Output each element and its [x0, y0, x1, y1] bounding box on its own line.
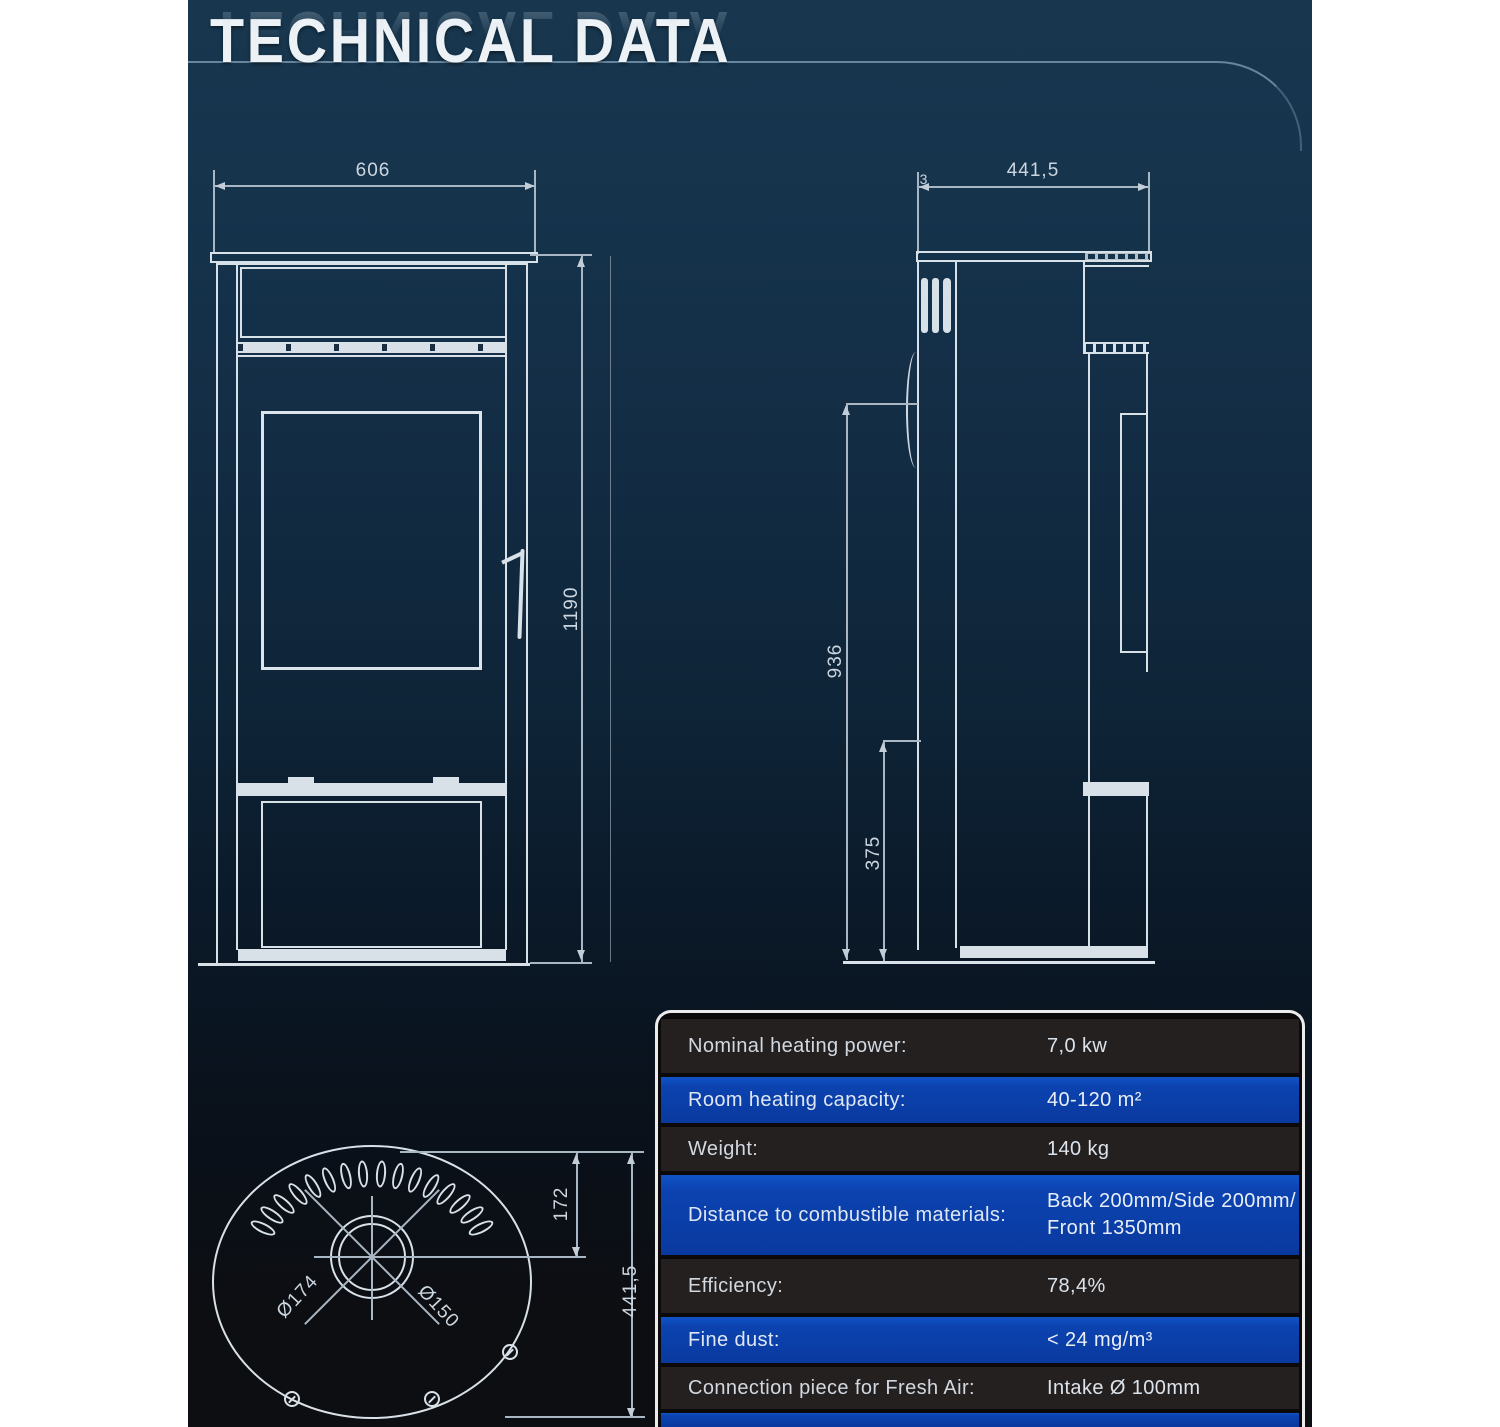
- spec-value: Back 200mm/Side 200mm/ Front 1350mm: [1047, 1188, 1296, 1242]
- flue-offset-dimension: 172: [551, 1174, 573, 1234]
- side-base-height-dimension: 375: [863, 823, 885, 883]
- spec-label: Weight:: [661, 1138, 1041, 1161]
- spec-value: 78,4%: [1047, 1273, 1106, 1300]
- page-title-reflection: TECHNICAL DATA: [210, 0, 731, 68]
- spec-value: Intake Ø 100mm: [1047, 1375, 1200, 1402]
- front-height-dimension: 1190: [561, 579, 583, 639]
- spec-label: Distance to combustible materials:: [661, 1204, 1041, 1227]
- side-depth-dimension: 441,5: [1000, 160, 1066, 182]
- front-door-glass: [261, 411, 482, 670]
- table-row: Efficiency: 78,4%: [661, 1259, 1299, 1313]
- table-row: Distance to combustible materials: Back …: [661, 1175, 1299, 1255]
- table-row: Nominal heating power: 7,0 kw: [661, 1019, 1299, 1073]
- spec-value-line2: Front 1350mm: [1047, 1215, 1296, 1242]
- table-row-partial: [661, 1413, 1299, 1427]
- table-row: Fine dust: < 24 mg/m³: [661, 1317, 1299, 1363]
- spec-value: 140 kg: [1047, 1136, 1109, 1163]
- spec-value: 40-120 m²: [1047, 1087, 1142, 1114]
- spec-label: Efficiency:: [661, 1275, 1041, 1298]
- plate-offset-dimension: 3: [916, 171, 932, 187]
- technical-data-sheet: TECHNICAL DATA TECHNICAL DATA 606: [0, 0, 1500, 1427]
- spec-label: Fine dust:: [661, 1329, 1041, 1352]
- spec-label: Nominal heating power:: [661, 1035, 1041, 1058]
- spec-table: Nominal heating power: 7,0 kw Room heati…: [655, 1010, 1305, 1427]
- table-row: Room heating capacity: 40-120 m²: [661, 1077, 1299, 1123]
- spec-label: Connection piece for Fresh Air:: [661, 1377, 1041, 1400]
- spec-value: 7,0 kw: [1047, 1033, 1107, 1060]
- table-row: Weight: 140 kg: [661, 1127, 1299, 1171]
- front-width-dimension: 606: [351, 160, 395, 182]
- top-depth-dimension: 441,5: [620, 1256, 642, 1326]
- side-body-height-dimension: 936: [825, 631, 847, 691]
- spec-value: < 24 mg/m³: [1047, 1327, 1153, 1354]
- spec-label: Room heating capacity:: [661, 1089, 1041, 1112]
- spec-value-line1: Back 200mm/Side 200mm/: [1047, 1188, 1296, 1215]
- table-row: Connection piece for Fresh Air: Intake Ø…: [661, 1367, 1299, 1409]
- side-vent-slats: [921, 278, 928, 333]
